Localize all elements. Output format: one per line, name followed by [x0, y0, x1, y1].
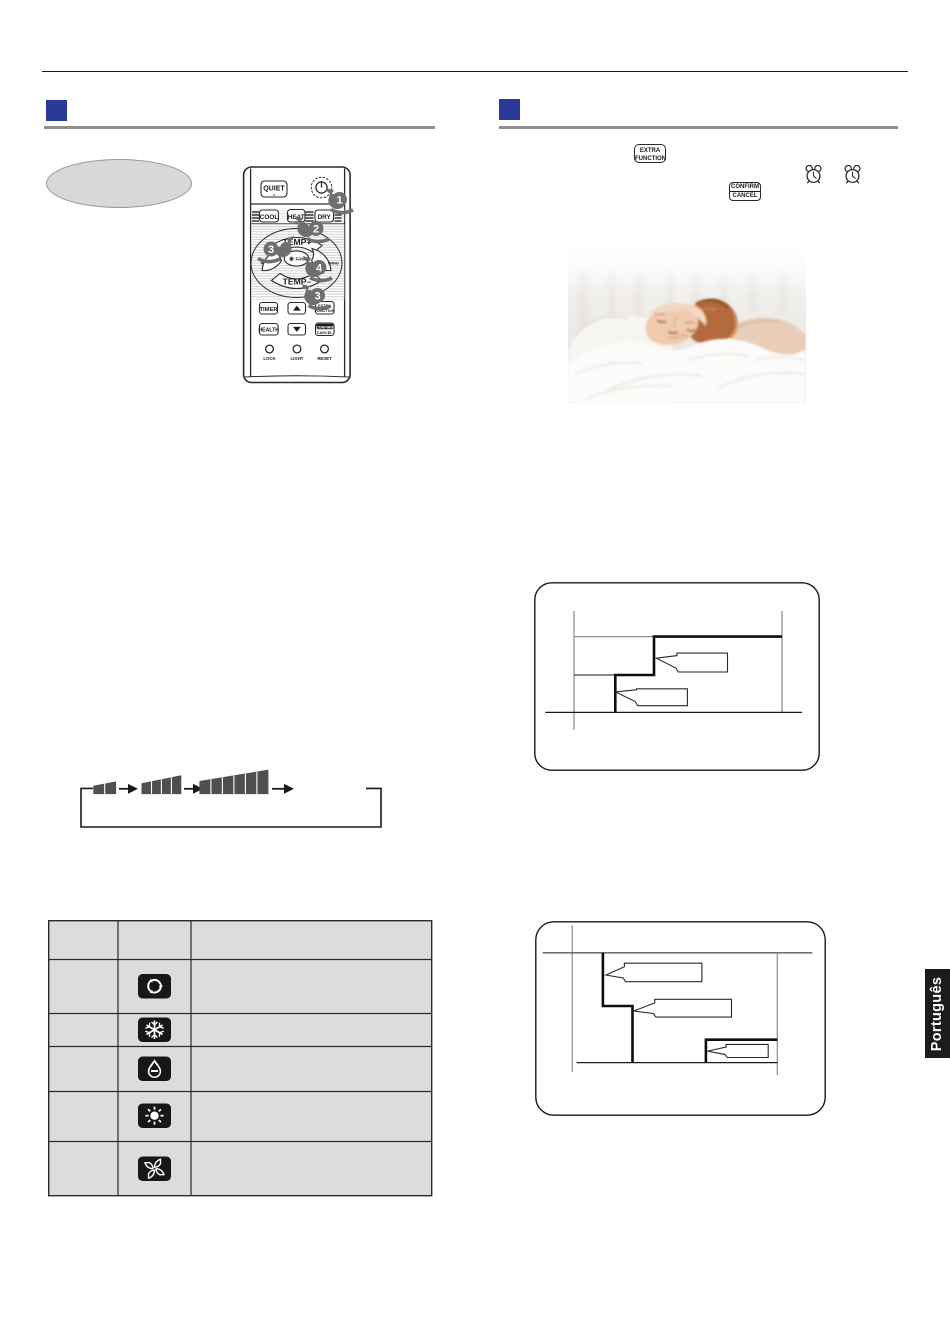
svg-text:3: 3 — [314, 291, 320, 303]
svg-text:1: 1 — [336, 195, 342, 207]
svg-text:COOL: COOL — [260, 214, 279, 221]
svg-text:CANCEL: CANCEL — [317, 331, 334, 335]
svg-text:DRY: DRY — [318, 214, 332, 221]
svg-text:WING: WING — [328, 261, 339, 266]
svg-text:LOCK: LOCK — [263, 356, 276, 361]
svg-text:❊: ❊ — [289, 256, 294, 263]
svg-text:TEMP–: TEMP– — [283, 277, 312, 287]
svg-text:TIMER: TIMER — [259, 307, 278, 313]
svg-text:HEALTH: HEALTH — [258, 328, 279, 334]
svg-text:RESET: RESET — [317, 356, 332, 361]
svg-text:2: 2 — [313, 224, 319, 236]
svg-text:LIGHT: LIGHT — [291, 356, 304, 361]
svg-text:CONFIRM: CONFIRM — [316, 325, 334, 329]
svg-text:3: 3 — [268, 244, 274, 256]
svg-text:4: 4 — [316, 263, 323, 275]
